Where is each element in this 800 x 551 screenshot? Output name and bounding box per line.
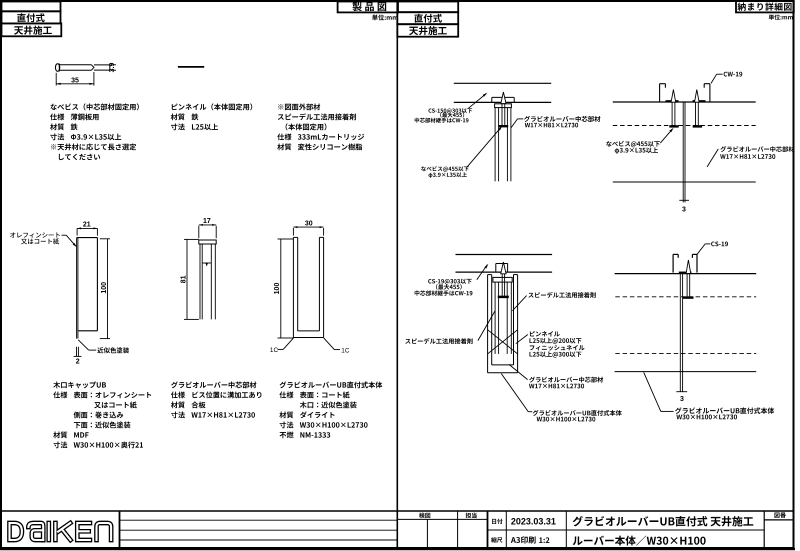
svg-text:1C: 1C bbox=[341, 347, 350, 354]
svg-text:81: 81 bbox=[180, 275, 187, 283]
svg-text:30: 30 bbox=[305, 220, 313, 227]
svg-text:1C: 1C bbox=[270, 347, 279, 354]
svg-text:2023.03.31: 2023.03.31 bbox=[511, 516, 556, 526]
svg-text:35: 35 bbox=[71, 77, 79, 84]
svg-text:100: 100 bbox=[274, 283, 281, 295]
svg-text:21: 21 bbox=[83, 222, 91, 229]
svg-text:100: 100 bbox=[101, 282, 108, 294]
svg-text:17: 17 bbox=[203, 218, 211, 225]
svg-text:3.9: 3.9 bbox=[109, 63, 116, 73]
svg-text:2: 2 bbox=[76, 358, 80, 365]
svg-text:3: 3 bbox=[682, 207, 686, 214]
svg-text:3: 3 bbox=[680, 396, 684, 403]
